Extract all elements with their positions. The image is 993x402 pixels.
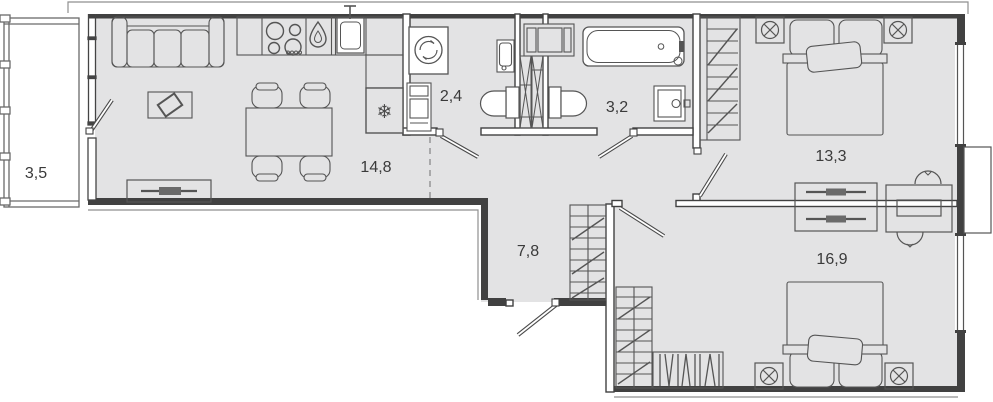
tv-icon bbox=[159, 187, 181, 195]
laundry-shelving bbox=[407, 83, 431, 131]
cushion bbox=[806, 41, 862, 73]
floor-plan-page: ❄ bbox=[0, 0, 993, 402]
kitchen-living-area-label: 14,8 bbox=[360, 159, 391, 176]
hallway-area-label: 7,8 bbox=[517, 243, 539, 260]
tv-icon bbox=[826, 189, 846, 196]
bedroom2-area-label: 16,9 bbox=[816, 251, 847, 268]
window-bedroom-1 bbox=[955, 42, 966, 147]
snowflake-icon: ❄ bbox=[377, 101, 393, 123]
laundry-area-label: 2,4 bbox=[440, 88, 462, 105]
balcony-area-label: 3,5 bbox=[25, 165, 47, 182]
facade-pier bbox=[964, 147, 991, 233]
bathtub bbox=[583, 27, 684, 66]
floor-plan: ❄ bbox=[0, 0, 993, 402]
kitchen-sink bbox=[337, 6, 364, 53]
bath-cabinet bbox=[524, 24, 574, 56]
bathroom-area-label: 3,2 bbox=[606, 99, 628, 116]
bath-sink bbox=[654, 86, 690, 121]
dining-table bbox=[246, 108, 332, 156]
living-west-wall bbox=[88, 14, 96, 200]
entrance-door bbox=[518, 299, 559, 335]
window-bedroom-2 bbox=[955, 233, 966, 333]
bath-tap-icon bbox=[679, 41, 684, 52]
cushion bbox=[807, 335, 863, 366]
washing-machine bbox=[409, 27, 448, 74]
tv-icon bbox=[826, 216, 846, 223]
bedroom1-area-label: 13,3 bbox=[815, 148, 846, 165]
bed-body bbox=[787, 63, 883, 135]
wc-sink bbox=[497, 40, 514, 72]
fridge: ❄ bbox=[366, 88, 403, 133]
